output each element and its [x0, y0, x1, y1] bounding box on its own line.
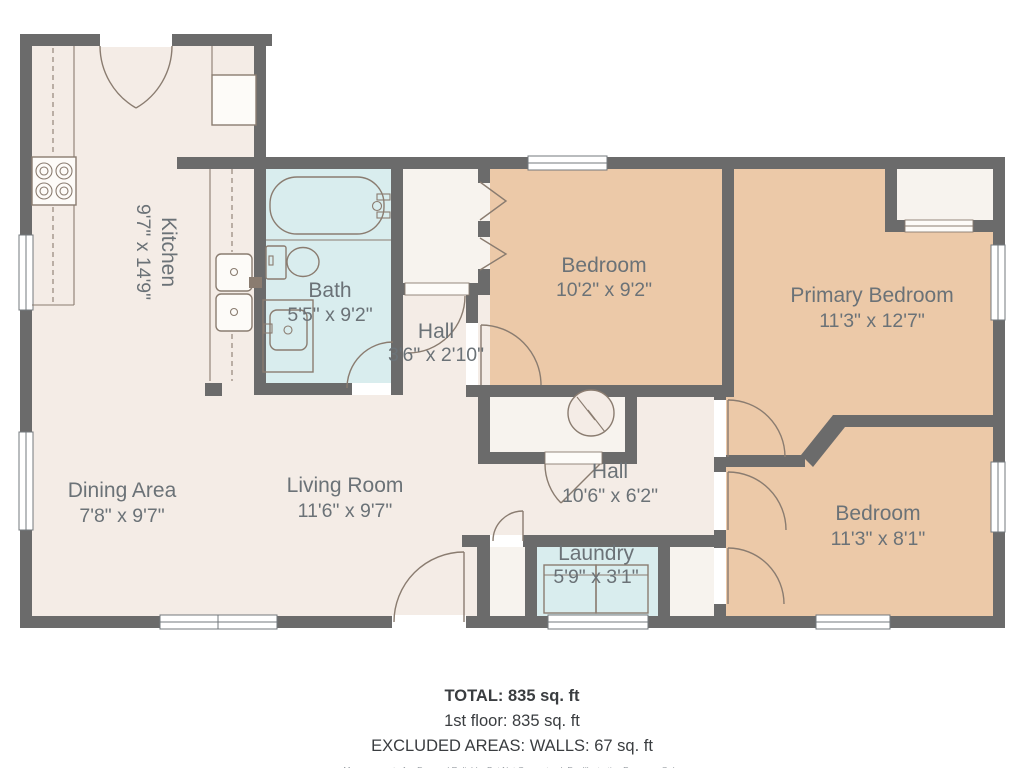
window-kitchen-left — [19, 235, 33, 310]
hall-closet-floor — [490, 547, 525, 616]
excluded-area-text: EXCLUDED AREAS: WALLS: 67 sq. ft — [0, 734, 1024, 759]
bath-floor — [266, 169, 391, 383]
primary-door-gap — [714, 400, 726, 457]
stove-icon — [32, 157, 76, 205]
bedroom-bottom-closet-floor — [670, 547, 714, 616]
area-summary: TOTAL: 835 sq. ft 1st floor: 835 sq. ft … — [0, 684, 1024, 768]
closet-b-door-gap — [714, 548, 726, 604]
bedroom-bottom-door-gap — [714, 472, 726, 530]
floorplan-page: Kitchen9'7" x 14'9" Bath5'5" x 9'2" Hall… — [0, 0, 1024, 768]
floorplan-svg: Kitchen9'7" x 14'9" Bath5'5" x 9'2" Hall… — [0, 0, 1024, 768]
window-bedroom-bottom — [816, 615, 890, 629]
bedroom-top-floor — [490, 169, 722, 385]
window-primary-right — [991, 245, 1005, 320]
window-dining-bottom — [160, 615, 277, 629]
front-entry-threshold — [392, 615, 466, 629]
window-laundry-bottom — [548, 615, 648, 629]
total-area-text: TOTAL: 835 sq. ft — [0, 684, 1024, 709]
window-bedroom-right — [991, 462, 1005, 532]
water-heater-icon — [568, 390, 614, 436]
bath-door-gap — [352, 383, 391, 395]
refrigerator-icon — [212, 75, 256, 125]
hall-closet-door-gap — [490, 535, 523, 547]
bedroom-top-closet-floor — [403, 169, 490, 283]
window-dining-left — [19, 432, 33, 530]
window-bedroom-top — [528, 156, 607, 170]
primary-closet-floor — [897, 169, 993, 220]
floor1-area-text: 1st floor: 835 sq. ft — [0, 709, 1024, 734]
disclaimer-text: Measurements Are Deemed Reliable, But No… — [0, 764, 1024, 768]
kitchen-entry-threshold — [100, 33, 172, 47]
hall-closet-opening — [405, 283, 469, 295]
